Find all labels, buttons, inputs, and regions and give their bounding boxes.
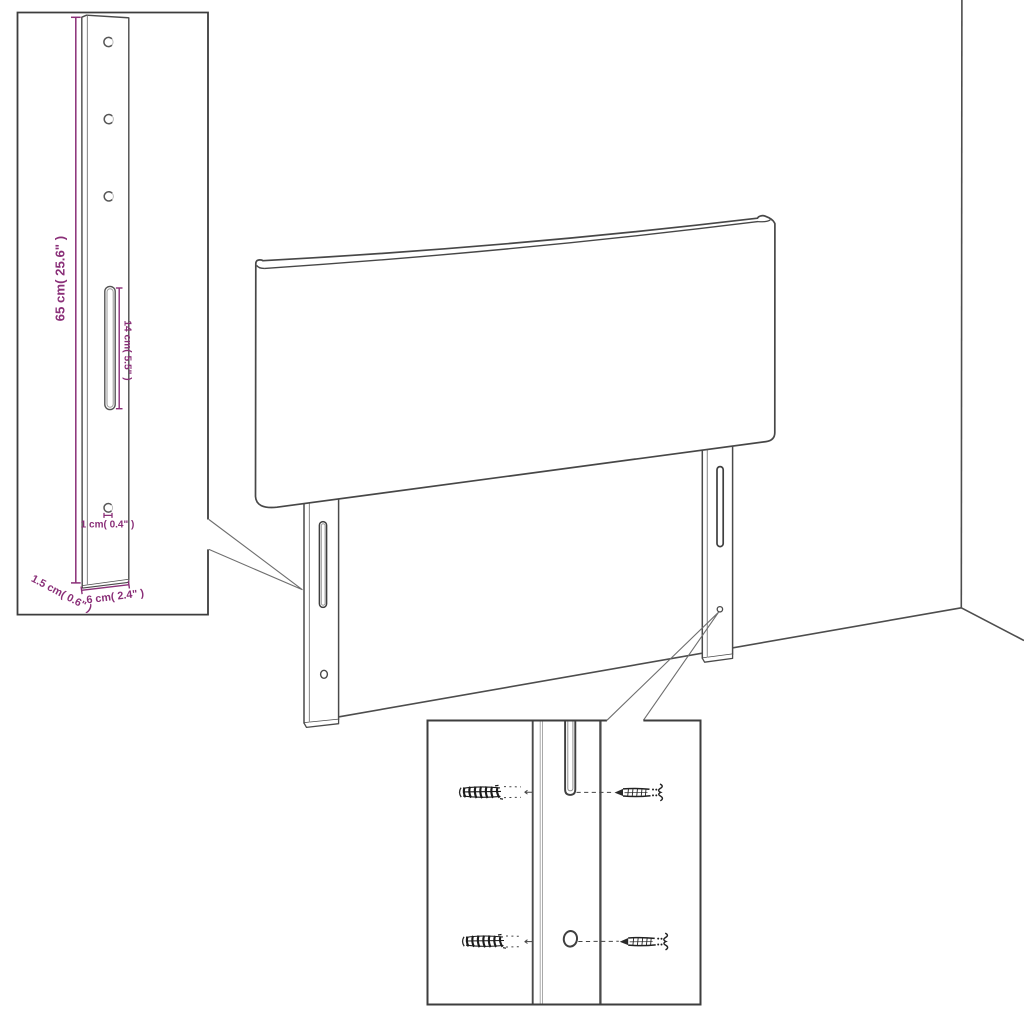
svg-text:65 cm( 25.6" ): 65 cm( 25.6" ) — [53, 236, 68, 321]
svg-text:1 cm( 0.4" ): 1 cm( 0.4" ) — [81, 519, 135, 530]
svg-text:14 cm( 5.5" ): 14 cm( 5.5" ) — [121, 320, 132, 380]
